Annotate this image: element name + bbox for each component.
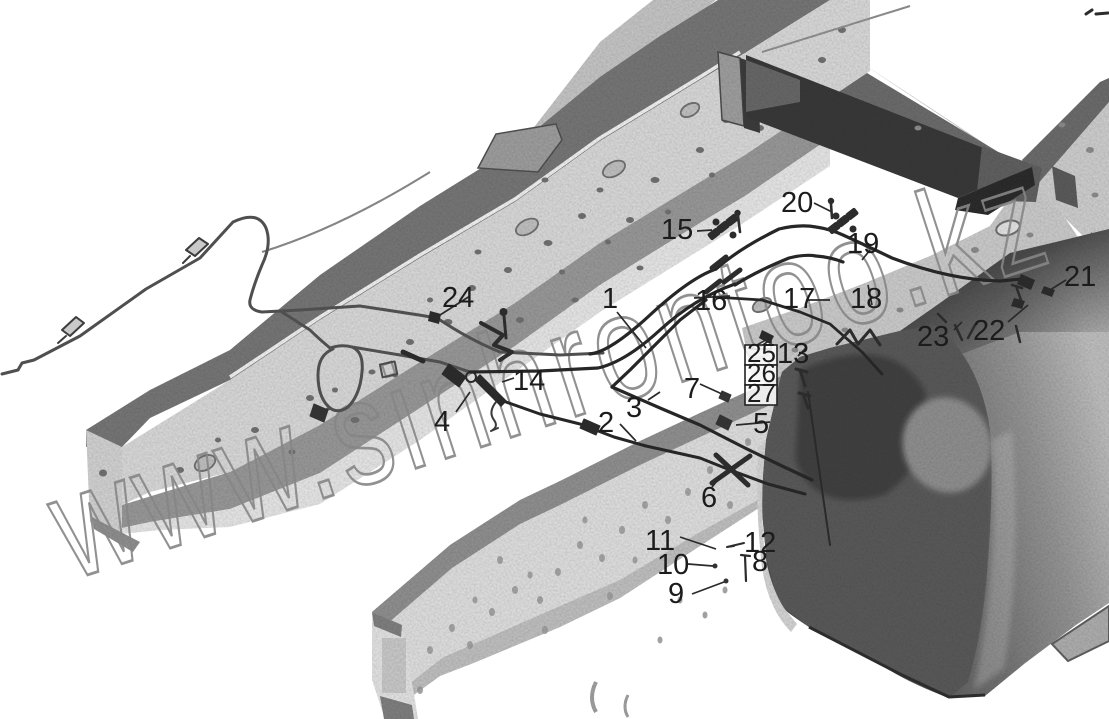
svg-text:2: 2: [598, 407, 614, 439]
svg-text:4: 4: [434, 406, 450, 438]
svg-text:7: 7: [684, 373, 700, 405]
svg-text:27: 27: [747, 378, 776, 408]
svg-text:9: 9: [668, 578, 684, 610]
svg-text:24: 24: [442, 282, 474, 314]
svg-text:17: 17: [783, 283, 815, 315]
svg-text:12: 12: [744, 527, 776, 559]
svg-text:14: 14: [513, 365, 545, 397]
svg-text:20: 20: [781, 187, 813, 219]
svg-text:15: 15: [661, 214, 693, 246]
svg-text:18: 18: [850, 283, 882, 315]
svg-text:16: 16: [695, 285, 727, 317]
svg-text:5: 5: [753, 408, 769, 440]
svg-text:13: 13: [777, 338, 809, 370]
svg-text:11: 11: [645, 525, 675, 557]
svg-text:21: 21: [1064, 261, 1096, 293]
svg-text:23: 23: [917, 321, 949, 353]
svg-text:19: 19: [847, 228, 879, 260]
svg-text:6: 6: [701, 482, 717, 514]
svg-text:22: 22: [973, 315, 1005, 347]
svg-text:3: 3: [626, 392, 642, 424]
svg-text:1: 1: [602, 283, 618, 315]
